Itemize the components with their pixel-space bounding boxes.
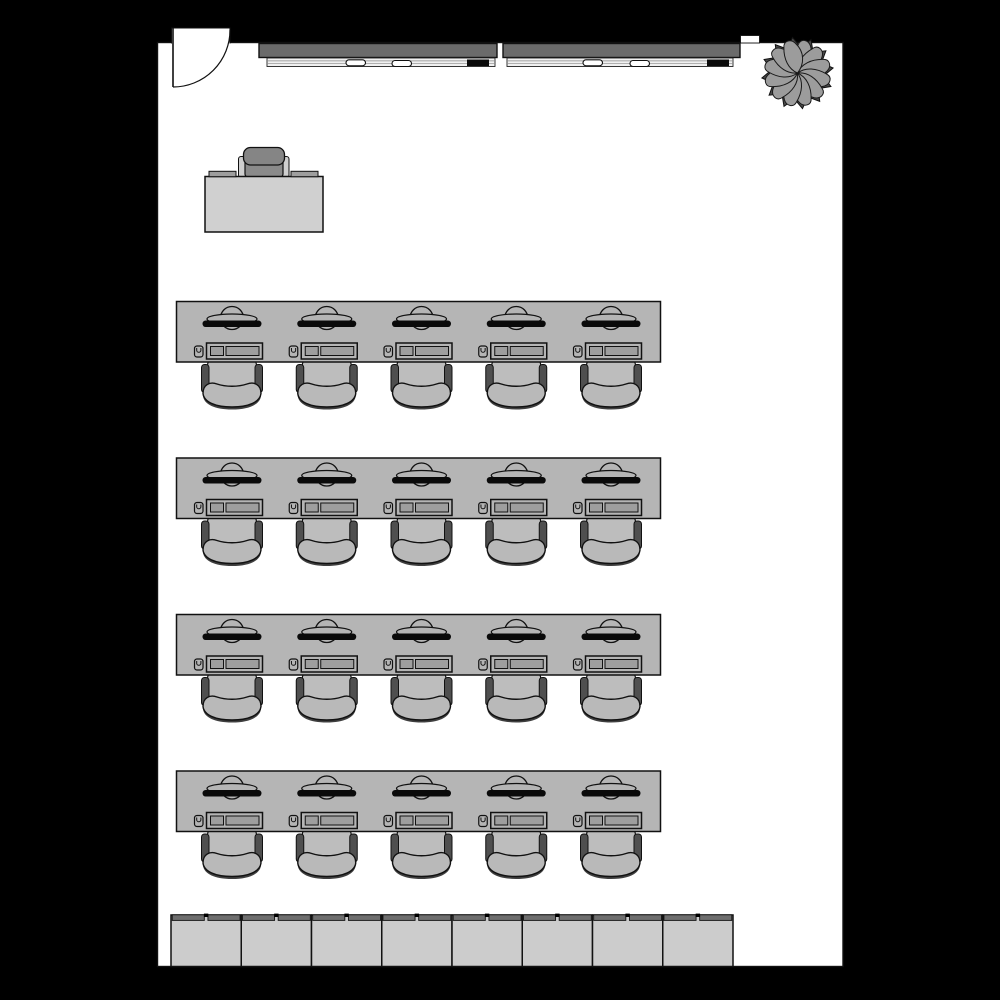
whiteboard-right [503,44,740,67]
mouse-body [479,503,488,514]
cabinet-hinge [696,914,700,917]
keyboard [301,656,357,672]
chair-backrest [203,853,261,877]
mouse-body [574,346,583,357]
keyboard [491,343,547,359]
mouse-body [384,346,393,357]
keyboard-keypad [305,503,318,512]
student-chair [296,355,357,410]
mouse-body [289,816,298,827]
keyboard-main-keys [416,347,449,356]
cabinet-body [312,915,382,967]
student-chair [202,512,263,567]
keyboard-keypad [211,816,224,825]
mouse [195,816,204,827]
keyboard-keypad [211,503,224,512]
cabinet-door-top [278,915,310,921]
floor-plan [0,0,1000,1000]
keyboard [586,656,642,672]
keyboard [301,813,357,829]
chair-backrest [298,383,356,407]
keyboard-keypad [495,660,508,669]
keyboard-main-keys [416,816,449,825]
dry-erase-marker [630,61,650,67]
cabinet-hinge [555,914,559,917]
keyboard [491,500,547,516]
chair-backrest [582,696,640,720]
keyboard-main-keys [321,660,354,669]
dry-erase-marker [392,61,412,67]
wall-notch [741,36,760,44]
keyboard-main-keys [226,816,259,825]
cabinet-door-top [172,915,204,921]
monitor-screen-edge [582,321,641,328]
mouse [479,659,488,670]
mouse-body [289,659,298,670]
mouse [289,503,298,514]
keyboard-main-keys [510,816,543,825]
monitor-screen-edge [392,321,451,328]
cabinet-body [593,915,663,967]
keyboard-main-keys [321,816,354,825]
workstation-row-1 [177,302,661,410]
workstation-row-2 [177,458,661,566]
mouse-body [289,346,298,357]
keyboard-main-keys [321,347,354,356]
keyboard-main-keys [510,503,543,512]
mouse-body [195,503,204,514]
monitor-screen-edge [582,790,641,797]
student-chair [202,355,263,410]
student-chair [391,825,452,880]
cabinet-hinge [625,914,629,917]
keyboard [301,500,357,516]
cabinet-door-top [419,915,451,921]
keyboard-main-keys [605,816,638,825]
monitor-screen-edge [487,790,546,797]
keyboard [396,656,452,672]
cabinet-door-top [664,915,696,921]
cabinet [241,914,311,967]
keyboard-main-keys [510,347,543,356]
marker-tray [507,58,733,67]
mouse-body [574,503,583,514]
cabinet-door-top [348,915,380,921]
chair-backrest [487,696,545,720]
mouse-body [479,816,488,827]
cabinet-door-top [489,915,521,921]
cabinet-door-top [313,915,345,921]
keyboard [207,813,263,829]
keyboard-keypad [590,503,603,512]
monitor-screen-edge [392,790,451,797]
monitor-screen-edge [297,321,356,328]
keyboard-main-keys [416,660,449,669]
desk-accessory [209,171,236,176]
keyboard [586,813,642,829]
mouse [384,659,393,670]
student-chair [391,355,452,410]
mouse [384,503,393,514]
keyboard-keypad [305,347,318,356]
keyboard [396,343,452,359]
mouse [479,346,488,357]
keyboard-keypad [400,816,413,825]
student-chair [296,825,357,880]
keyboard [491,813,547,829]
student-chair [581,355,642,410]
keyboard [207,656,263,672]
monitor-screen-edge [203,321,262,328]
keyboard-main-keys [605,660,638,669]
mouse-body [574,816,583,827]
chair-backrest [487,853,545,877]
whiteboard-surface [503,44,740,58]
chair-backrest [582,383,640,407]
keyboard [491,656,547,672]
keyboard-keypad [495,503,508,512]
monitor-screen-edge [297,790,356,797]
keyboard [586,343,642,359]
mouse-body [289,503,298,514]
cabinet-hinge [344,914,348,917]
dry-erase-marker [346,60,366,66]
cabinet-body [452,915,522,967]
mouse-body [384,659,393,670]
student-chair [202,825,263,880]
keyboard [301,343,357,359]
keyboard-keypad [400,347,413,356]
keyboard-keypad [211,660,224,669]
chair-backrest [393,540,451,564]
chair-backrest [393,696,451,720]
student-chair [486,825,547,880]
cabinet [452,914,522,967]
desk-accessory [291,171,318,176]
monitor-screen-edge [297,477,356,484]
mouse [195,346,204,357]
keyboard-main-keys [416,503,449,512]
monitor-screen-edge [203,477,262,484]
keyboard-main-keys [605,347,638,356]
mouse-body [479,659,488,670]
cabinet-door-top [594,915,626,921]
keyboard-keypad [590,816,603,825]
board-eraser [467,60,489,67]
board-eraser [707,60,729,67]
mouse [574,659,583,670]
monitor-screen-edge [392,634,451,641]
chair-backrest [298,540,356,564]
student-chair [202,668,263,723]
cabinet-door-top [453,915,485,921]
door-opening [172,28,231,44]
keyboard [396,813,452,829]
monitor-screen-edge [203,790,262,797]
keyboard-main-keys [510,660,543,669]
monitor-screen-edge [392,477,451,484]
chair-backrest [582,540,640,564]
mouse [195,659,204,670]
student-chair [486,512,547,567]
chair-backrest [203,540,261,564]
cabinet-door-top [629,915,661,921]
cabinet-door-top [559,915,591,921]
monitor-screen-edge [487,477,546,484]
keyboard-keypad [495,816,508,825]
chair-backrest [487,383,545,407]
cabinet-run [171,914,733,967]
mouse-body [574,659,583,670]
chair-backrest [244,148,285,166]
mouse-body [195,346,204,357]
monitor-screen-edge [487,321,546,328]
cabinet-body [241,915,311,967]
cabinet-hinge [204,914,208,917]
mouse-body [384,816,393,827]
cabinet [663,914,733,967]
keyboard-main-keys [226,347,259,356]
keyboard-keypad [495,347,508,356]
mouse [574,816,583,827]
mouse [289,816,298,827]
cabinet-hinge [485,914,489,917]
cabinet-door-top [208,915,240,921]
keyboard-main-keys [226,503,259,512]
keyboard-keypad [305,660,318,669]
keyboard-main-keys [605,503,638,512]
student-chair [581,668,642,723]
chair-backrest [393,383,451,407]
cabinet-hinge [415,914,419,917]
cabinet-door-top [700,915,732,921]
mouse [384,816,393,827]
mouse [195,503,204,514]
student-chair [486,355,547,410]
cabinet [593,914,663,967]
keyboard-keypad [400,503,413,512]
cabinet-body [522,915,592,967]
monitor-screen-edge [582,477,641,484]
cabinet-door-top [523,915,555,921]
mouse [479,816,488,827]
cabinet [171,914,241,967]
keyboard [207,500,263,516]
dry-erase-marker [583,60,603,66]
cabinet-door-top [242,915,274,921]
mouse-body [195,659,204,670]
student-chair [296,668,357,723]
teacher-chair [239,148,290,178]
cabinet [312,914,382,967]
cabinet-door-top [383,915,415,921]
cabinet [522,914,592,967]
chair-backrest [203,696,261,720]
chair-backrest [393,853,451,877]
chair-backrest [298,696,356,720]
chair-backrest [487,540,545,564]
keyboard-keypad [590,347,603,356]
mouse-body [195,816,204,827]
keyboard [396,500,452,516]
whiteboard-surface [259,44,497,58]
chair-backrest [582,853,640,877]
keyboard-keypad [590,660,603,669]
mouse-body [384,503,393,514]
marker-tray [267,58,495,67]
keyboard-keypad [305,816,318,825]
cabinet-body [663,915,733,967]
teacher-desk [205,177,323,233]
chair-backrest [298,853,356,877]
monitor-screen-edge [582,634,641,641]
cabinet-hinge [274,914,278,917]
student-chair [581,825,642,880]
mouse [574,503,583,514]
monitor-screen-edge [487,634,546,641]
keyboard-main-keys [226,660,259,669]
cabinet [382,914,452,967]
mouse [384,346,393,357]
mouse [289,346,298,357]
student-chair [391,512,452,567]
chair-backrest [203,383,261,407]
cabinet-body [382,915,452,967]
whiteboard-left [259,44,497,67]
mouse [289,659,298,670]
student-chair [391,668,452,723]
keyboard [586,500,642,516]
monitor-screen-edge [297,634,356,641]
monitor-screen-edge [203,634,262,641]
cabinet-body [171,915,241,967]
mouse [479,503,488,514]
keyboard-keypad [211,347,224,356]
mouse-body [479,346,488,357]
keyboard [207,343,263,359]
workstation-row-3 [177,615,661,723]
mouse [574,346,583,357]
student-chair [296,512,357,567]
keyboard-main-keys [321,503,354,512]
student-chair [581,512,642,567]
workstation-row-4 [177,771,661,879]
keyboard-keypad [400,660,413,669]
student-chair [486,668,547,723]
